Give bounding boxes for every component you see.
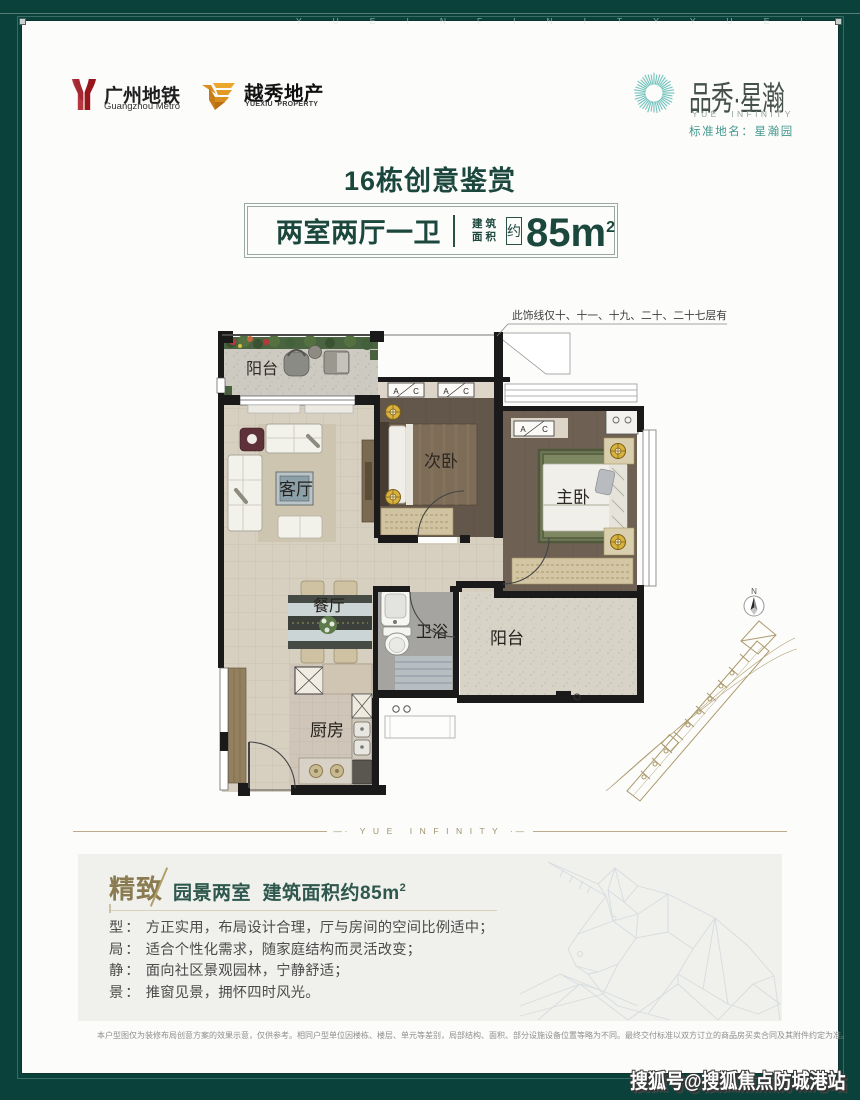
svg-text:阳台: 阳台 [246, 360, 278, 378]
svg-text:A: A [520, 425, 526, 434]
svg-text:次卧: 次卧 [424, 452, 458, 471]
svg-text:客厅: 客厅 [279, 480, 313, 499]
svg-text:卫浴: 卫浴 [416, 623, 448, 641]
svg-text:C: C [463, 387, 469, 396]
svg-text:阳台: 阳台 [490, 629, 524, 648]
svg-text:A: A [443, 387, 449, 396]
svg-text:N: N [751, 587, 757, 596]
svg-text:主卧: 主卧 [556, 488, 590, 507]
svg-text:餐厅: 餐厅 [313, 597, 345, 615]
svg-text:此饰线仅十、十一、十九、二十、二十七层有: 此饰线仅十、十一、十九、二十、二十七层有 [512, 308, 727, 322]
svg-text:C: C [413, 387, 419, 396]
svg-text:厨房: 厨房 [310, 721, 344, 740]
svg-text:A: A [393, 387, 399, 396]
svg-text:C: C [542, 425, 548, 434]
